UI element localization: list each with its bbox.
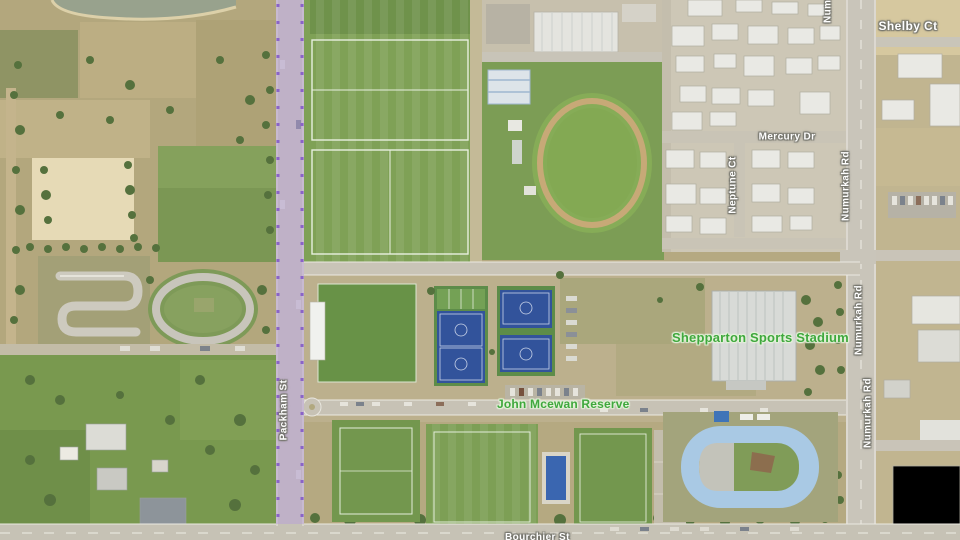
street-label-numurkah-rd-south: Numurkah Rd xyxy=(863,378,874,448)
velodrome-shed xyxy=(714,411,729,422)
street-label-mercury-dr: Mercury Dr xyxy=(759,132,816,143)
route-highlight[interactable] xyxy=(276,0,304,524)
map-imagery xyxy=(0,0,960,540)
street-label-neptune-ct: Neptune Ct xyxy=(728,156,739,213)
satellite-map[interactable]: Shelby Ct Mercury Dr Neptune Ct Numurkah… xyxy=(0,0,960,540)
east-commercial xyxy=(876,0,960,540)
netball-courts-east xyxy=(497,286,555,376)
big-store-building xyxy=(893,466,960,524)
trotting-track xyxy=(148,269,258,349)
street-label-numurkah-rd-top-partial: Numurkah Rd xyxy=(823,0,834,23)
mercury-dr-road xyxy=(662,131,846,143)
street-label-packham-st: Packham St xyxy=(279,380,290,441)
afl-oval-block xyxy=(482,62,664,260)
velodrome xyxy=(663,411,838,522)
bowls-green xyxy=(310,284,416,382)
south-fields xyxy=(332,420,686,530)
paddock-green xyxy=(158,146,276,262)
netball-courts-west xyxy=(434,286,488,386)
street-label-shelby-ct: Shelby Ct xyxy=(879,19,938,33)
shelby-ct-road xyxy=(876,37,960,47)
bmx-track xyxy=(38,256,150,350)
sports-fields-north xyxy=(304,0,482,262)
pool xyxy=(542,452,570,504)
field-c xyxy=(574,428,652,530)
street-label-bottom-partial: Bourchier St xyxy=(505,532,570,540)
industrial-east xyxy=(662,0,846,252)
place-label-john-mcewan-reserve[interactable]: John Mcewan Reserve xyxy=(497,397,630,411)
street-label-numurkah-rd-north: Numurkah Rd xyxy=(841,151,852,221)
place-label-shepparton-sports-stadium[interactable]: Shepparton Sports Stadium xyxy=(672,330,849,345)
precinct-road-north xyxy=(304,262,860,275)
industrial-north xyxy=(482,0,662,62)
street-label-numurkah-rd-mid: Numurkah Rd xyxy=(854,285,865,355)
south-road xyxy=(0,524,960,540)
